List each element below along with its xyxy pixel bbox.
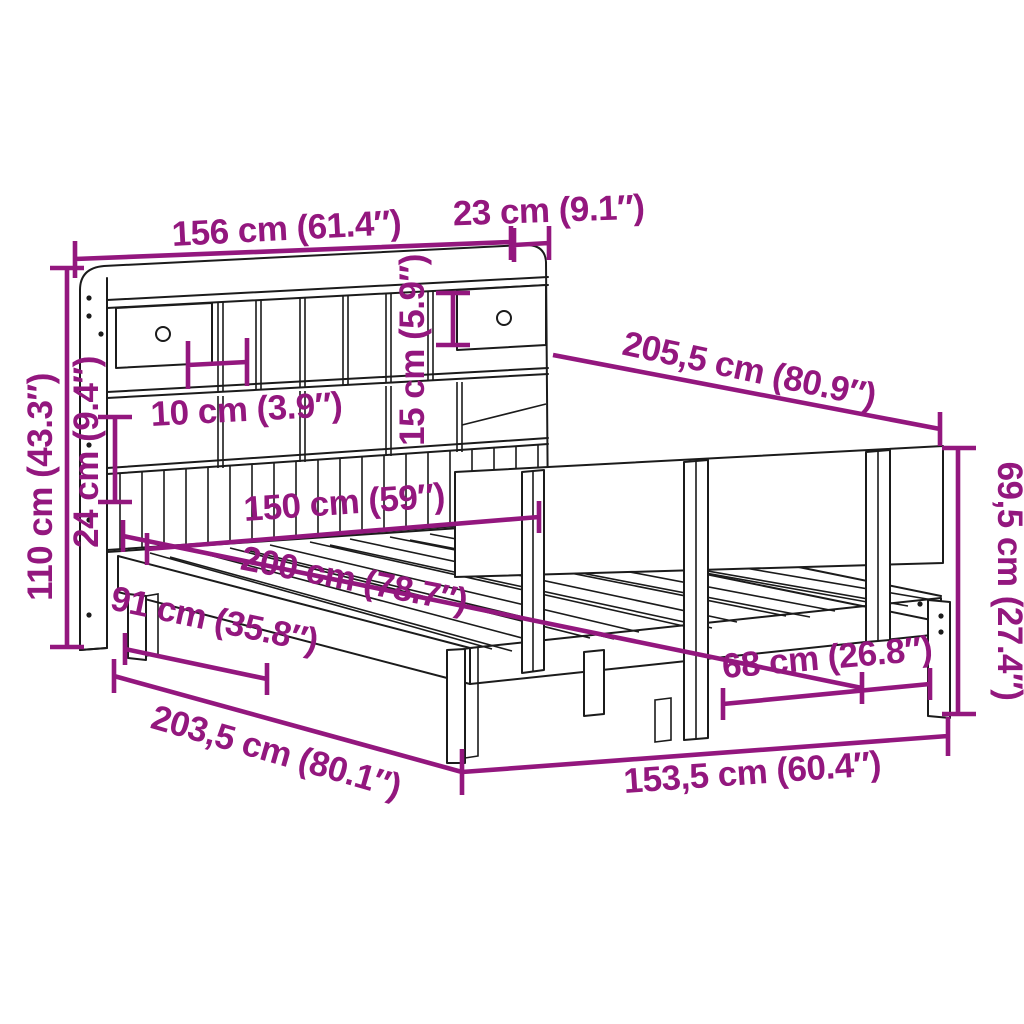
dim-label-15cm: 15 cm (5.9″) [393,254,432,446]
leg-middle [584,650,604,716]
dim-label-68cm: 68 cm (26.8″) [720,629,933,686]
dim-label-24cm: 24 cm (9.4″) [67,356,106,548]
bed-drawing [80,245,950,763]
leg-front-corner [447,649,465,763]
dim-label-203-5cm: 203,5 cm (80.1″) [147,698,406,807]
headboard-drawer-right [457,285,546,350]
dim-label-110cm: 110 cm (43.3″) [21,373,60,601]
bed-dimension-diagram: 156 cm (61.4″) 23 cm (9.1″) 205,5 cm (80… [0,0,1024,1024]
dim-label-69-5cm: 69,5 cm (27.4″) [990,462,1024,701]
dim-label-153-5cm: 153,5 cm (60.4″) [622,744,882,801]
dim-base-length: 203,5 cm (80.1″) [114,659,462,806]
dim-rail-height: 69,5 cm (27.4″) [942,448,1024,714]
dim-label-23cm: 23 cm (9.1″) [452,188,645,234]
dim-foot-gap: 68 cm (26.8″) [720,629,933,720]
dim-label-205-5cm: 205,5 cm (80.9″) [619,324,879,416]
dim-total-length: 205,5 cm (80.9″) [553,324,940,446]
diagram-canvas: 156 cm (61.4″) 23 cm (9.1″) 205,5 cm (80… [0,0,1024,1024]
side-guard-rail [455,446,943,740]
headboard-drawer-left [116,303,212,368]
